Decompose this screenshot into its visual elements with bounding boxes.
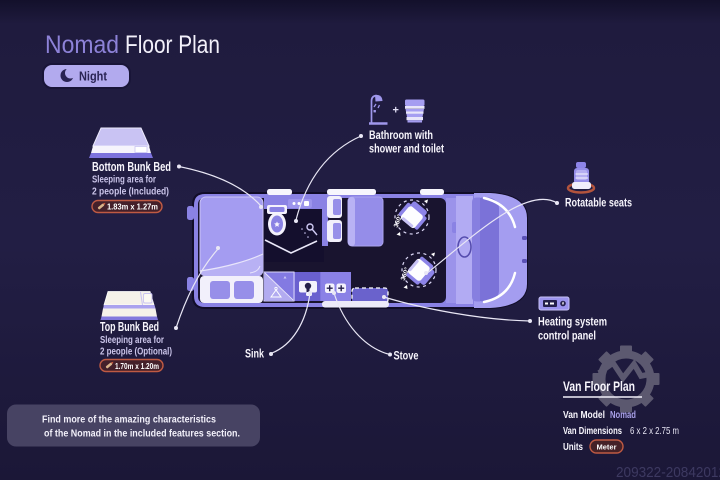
svg-text:1.83m x 1.27m: 1.83m x 1.27m: [107, 203, 158, 212]
svg-text:2 people (Included): 2 people (Included): [92, 186, 169, 198]
svg-text:Sink: Sink: [245, 347, 264, 361]
svg-text:Van Floor Plan: Van Floor Plan: [563, 378, 635, 394]
svg-text:Find more of the amazing chara: Find more of the amazing characteristics: [42, 414, 216, 426]
svg-text:Floor Plan: Floor Plan: [125, 31, 220, 59]
svg-text:Bottom Bunk Bed: Bottom Bunk Bed: [92, 160, 171, 174]
svg-text:1.70m x 1.20m: 1.70m x 1.20m: [115, 362, 159, 371]
svg-text:209322-20842012: 209322-20842012: [616, 464, 720, 480]
svg-text:shower and toilet: shower and toilet: [369, 142, 444, 156]
svg-text:Van Dimensions: Van Dimensions: [563, 425, 622, 437]
svg-text:Nomad: Nomad: [610, 409, 636, 421]
svg-text:of the Nomad in the included f: of the Nomad in the included features se…: [44, 428, 240, 440]
svg-text:control panel: control panel: [538, 329, 596, 343]
svg-text:Sleeping area for: Sleeping area for: [100, 334, 164, 346]
svg-text:2 people (Optional): 2 people (Optional): [100, 346, 172, 358]
svg-text:Van Model: Van Model: [563, 409, 605, 421]
svg-text:Night: Night: [79, 69, 108, 84]
svg-text:+: +: [393, 105, 399, 117]
svg-text:6 x 2 x 2.75 m: 6 x 2 x 2.75 m: [630, 425, 679, 437]
svg-text:Bathroom with: Bathroom with: [369, 128, 433, 142]
svg-text:Stove: Stove: [394, 349, 419, 363]
svg-text:Top Bunk Bed: Top Bunk Bed: [100, 320, 159, 334]
svg-text:Rotatable seats: Rotatable seats: [565, 196, 632, 210]
svg-text:Nomad: Nomad: [45, 31, 119, 59]
svg-text:Sleeping area for: Sleeping area for: [92, 174, 156, 186]
svg-text:Heating system: Heating system: [538, 315, 607, 329]
svg-text:Units: Units: [563, 441, 583, 453]
svg-text:Meter: Meter: [597, 443, 617, 452]
